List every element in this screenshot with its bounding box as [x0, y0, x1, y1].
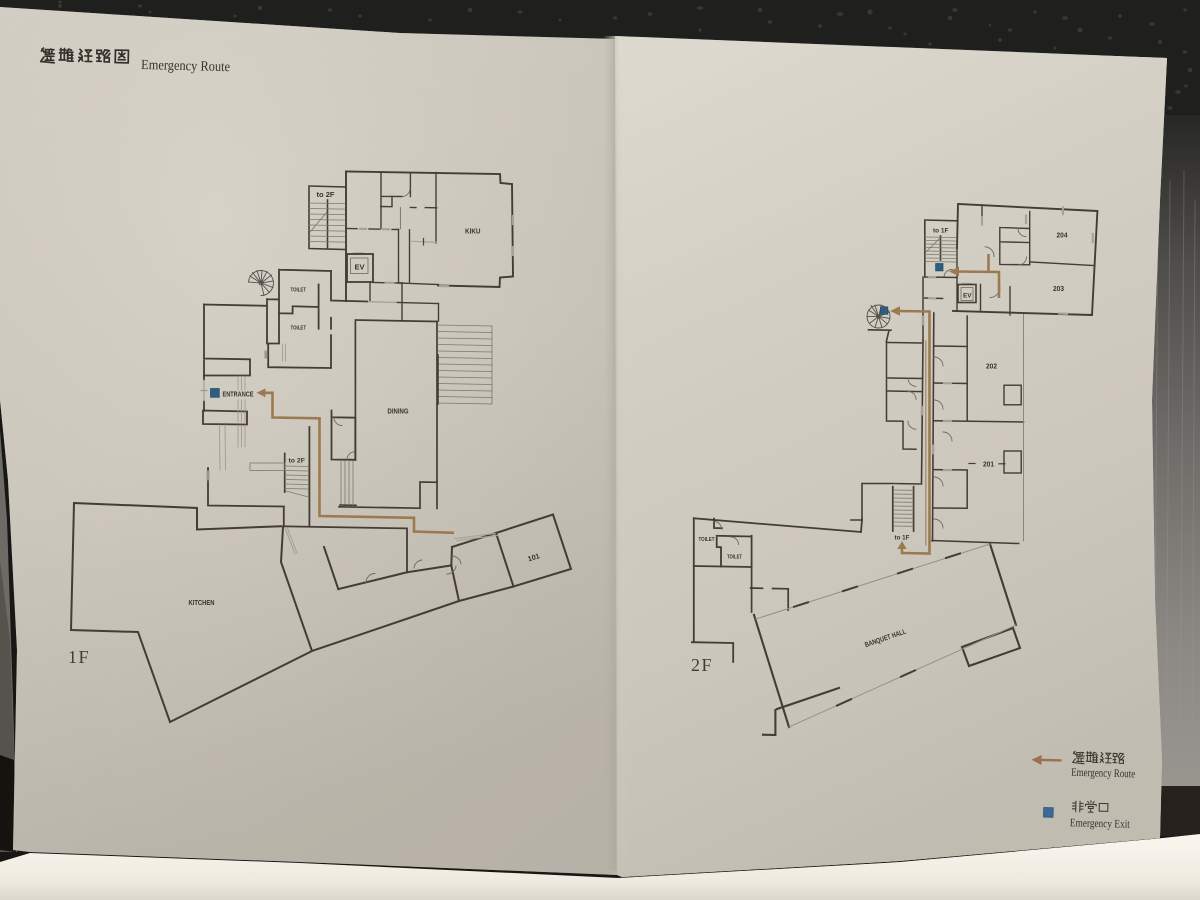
svg-text:to 1F: to 1F [933, 227, 949, 234]
svg-text:to 2F: to 2F [317, 192, 336, 199]
svg-text:TOILET: TOILET [699, 537, 715, 543]
svg-text:1F: 1F [68, 647, 90, 667]
svg-text:ENTRANCE: ENTRANCE [223, 390, 254, 399]
svg-text:TOILET: TOILET [291, 288, 307, 294]
svg-text:to 2F: to 2F [289, 458, 306, 465]
svg-text:202: 202 [986, 364, 997, 371]
svg-text:KITCHEN: KITCHEN [189, 598, 215, 607]
svg-text:EV: EV [355, 265, 365, 272]
svg-text:Emergency Route: Emergency Route [1071, 767, 1135, 781]
svg-text:KIKU: KIKU [465, 227, 481, 236]
svg-text:TOILET: TOILET [291, 326, 307, 332]
svg-text:203: 203 [1053, 286, 1064, 293]
svg-text:201: 201 [983, 461, 994, 468]
svg-text:Emergency Route: Emergency Route [141, 58, 230, 75]
svg-text:TOILET: TOILET [727, 554, 742, 560]
svg-text:to 1F: to 1F [895, 534, 910, 541]
svg-text:Emergency Exit: Emergency Exit [1070, 817, 1131, 831]
svg-text:DINING: DINING [388, 407, 409, 416]
svg-text:204: 204 [1057, 233, 1068, 240]
svg-text:2F: 2F [691, 655, 713, 675]
svg-text:EV: EV [963, 293, 972, 300]
